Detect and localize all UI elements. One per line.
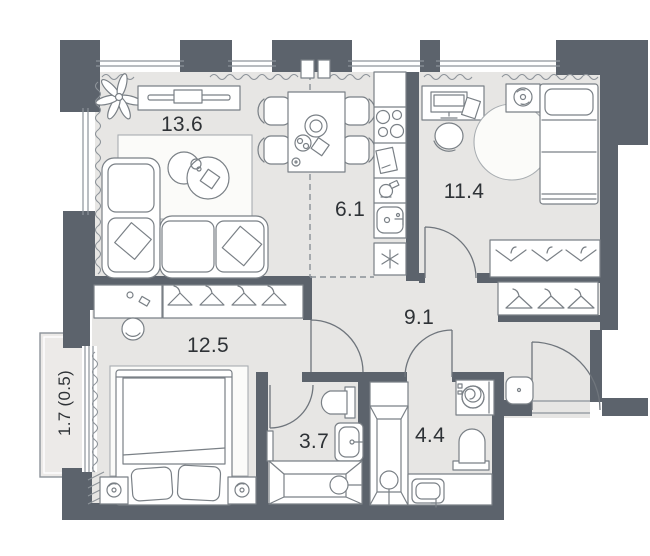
room-label-balcony: 1.7 (0.5)	[55, 370, 74, 436]
entry-mat	[506, 377, 533, 404]
room-label-bedroom-2: 12.5	[187, 334, 229, 357]
room-label-bedroom: 11.4	[444, 180, 485, 203]
nightstand-lamp	[506, 84, 540, 112]
stool	[122, 318, 144, 340]
nightstand-right	[228, 477, 256, 504]
window-small	[228, 40, 276, 70]
room-label-bathroom-2: 4.4	[415, 424, 445, 447]
window-kitchen	[348, 40, 424, 70]
bathroom-sink-icon	[335, 423, 363, 461]
window-bedroom	[436, 40, 560, 70]
round-rug	[474, 104, 550, 180]
balcony-door	[82, 346, 97, 472]
room-label-bathroom: 3.7	[299, 430, 329, 453]
vanity-desk	[94, 285, 162, 318]
room-label-kitchen: 6.1	[335, 198, 365, 221]
wardrobe-bedroom-2	[163, 285, 303, 318]
appliance-star-icon	[374, 243, 406, 275]
bed-double	[116, 370, 232, 505]
window-living	[96, 40, 184, 70]
bed-single	[540, 84, 598, 204]
wardrobe-bedroom	[490, 240, 600, 277]
floor-plan-drawing: 13.6 6.1 11.4 9.1 12.5 3.7 4.4 1.7 (0.5)	[0, 0, 650, 556]
nightstand-left	[100, 477, 128, 504]
bathtub-icon	[269, 461, 362, 504]
washing-machine-icon	[456, 380, 494, 415]
vanity-sink-icon	[408, 474, 492, 507]
floor-plan: 13.6 6.1 11.4 9.1 12.5 3.7 4.4 1.7 (0.5)	[0, 0, 650, 556]
desk	[422, 86, 484, 120]
wardrobe-hallway	[498, 282, 598, 315]
bathtub-2-icon	[370, 382, 408, 505]
room-label-living: 13.6	[161, 113, 203, 136]
kitchen-sink-icon	[377, 207, 403, 233]
room-label-hallway: 9.1	[404, 306, 434, 329]
window-left	[63, 108, 93, 215]
towel-rail	[267, 431, 273, 461]
tv-console	[138, 86, 240, 110]
